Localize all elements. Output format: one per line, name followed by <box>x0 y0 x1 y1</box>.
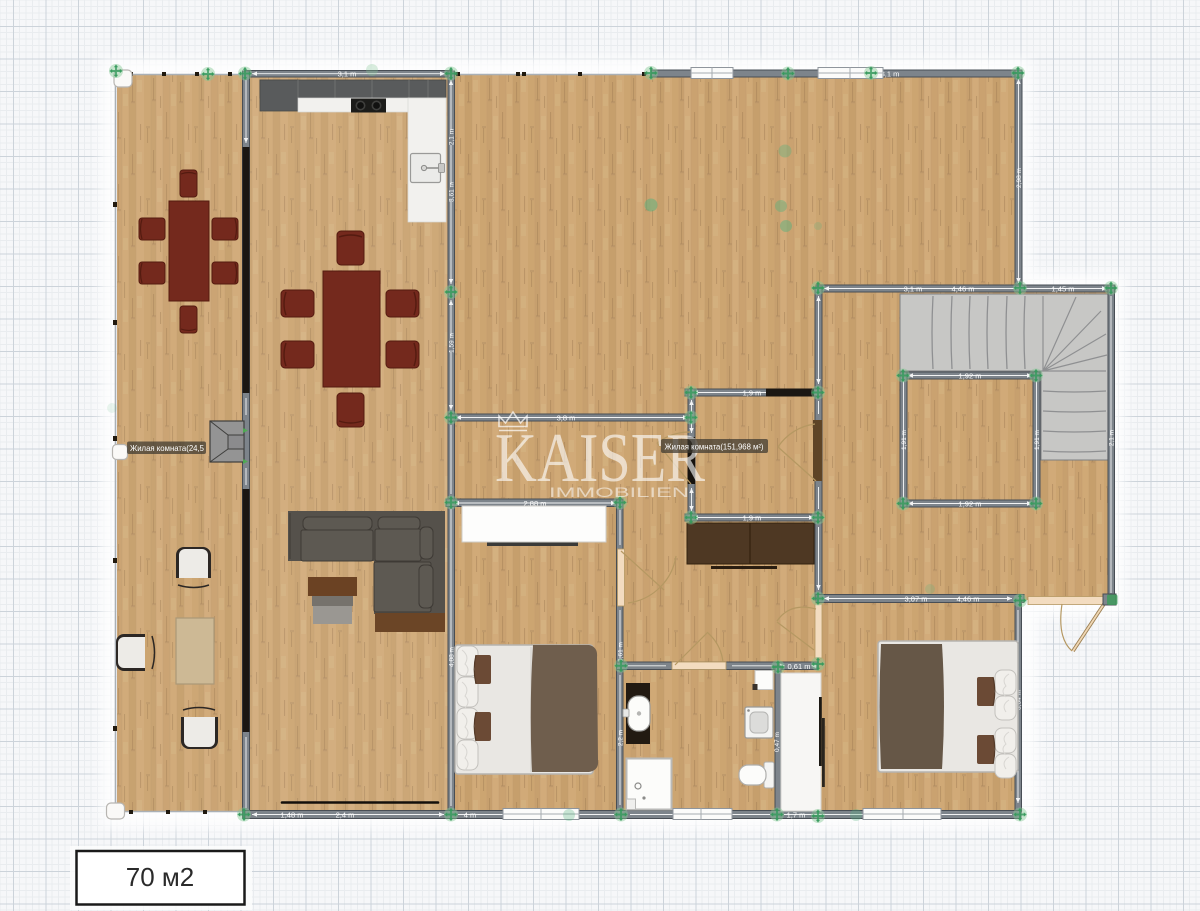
svg-text:4,46 m: 4,46 m <box>952 285 975 294</box>
svg-text:1,9 m: 1,9 m <box>743 514 762 523</box>
svg-text:Жилая комната(24,5: Жилая комната(24,5 <box>130 443 204 453</box>
svg-text:Жилая комната(151,968 м²): Жилая комната(151,968 м²) <box>665 443 764 452</box>
svg-text:3,61 m: 3,61 m <box>449 182 456 202</box>
svg-text:1,48 m: 1,48 m <box>281 811 304 820</box>
svg-text:70 м2: 70 м2 <box>126 862 194 892</box>
svg-text:1,91 m: 1,91 m <box>901 430 908 450</box>
svg-text:IMMOBILIEN: IMMOBILIEN <box>549 485 689 500</box>
svg-text:1,45 m: 1,45 m <box>1052 285 1075 294</box>
svg-text:1,9 m: 1,9 m <box>743 389 762 398</box>
svg-text:2,98 m: 2,98 m <box>1016 168 1023 188</box>
svg-text:2,1 m: 2,1 m <box>1109 430 1116 446</box>
svg-text:4 m: 4 m <box>464 811 477 820</box>
svg-text:2,4 m: 2,4 m <box>336 811 355 820</box>
svg-text:4,46 m: 4,46 m <box>957 595 980 604</box>
svg-text:1,91 m: 1,91 m <box>1034 430 1041 450</box>
svg-text:2,1 m: 2,1 m <box>449 129 456 145</box>
svg-text:2,2 m: 2,2 m <box>618 730 625 746</box>
svg-text:3,07 m: 3,07 m <box>905 595 928 604</box>
svg-text:3,1 m: 3,1 m <box>338 70 357 79</box>
svg-text:1,59 m: 1,59 m <box>449 333 456 353</box>
svg-text:1,92 m: 1,92 m <box>959 372 982 381</box>
svg-text:0,61 m: 0,61 m <box>788 662 811 671</box>
svg-text:1,7 m: 1,7 m <box>787 811 806 820</box>
svg-text:1,92 m: 1,92 m <box>959 500 982 509</box>
svg-text:3,1 m: 3,1 m <box>904 285 923 294</box>
svg-text:0,47 m: 0,47 m <box>774 732 781 752</box>
